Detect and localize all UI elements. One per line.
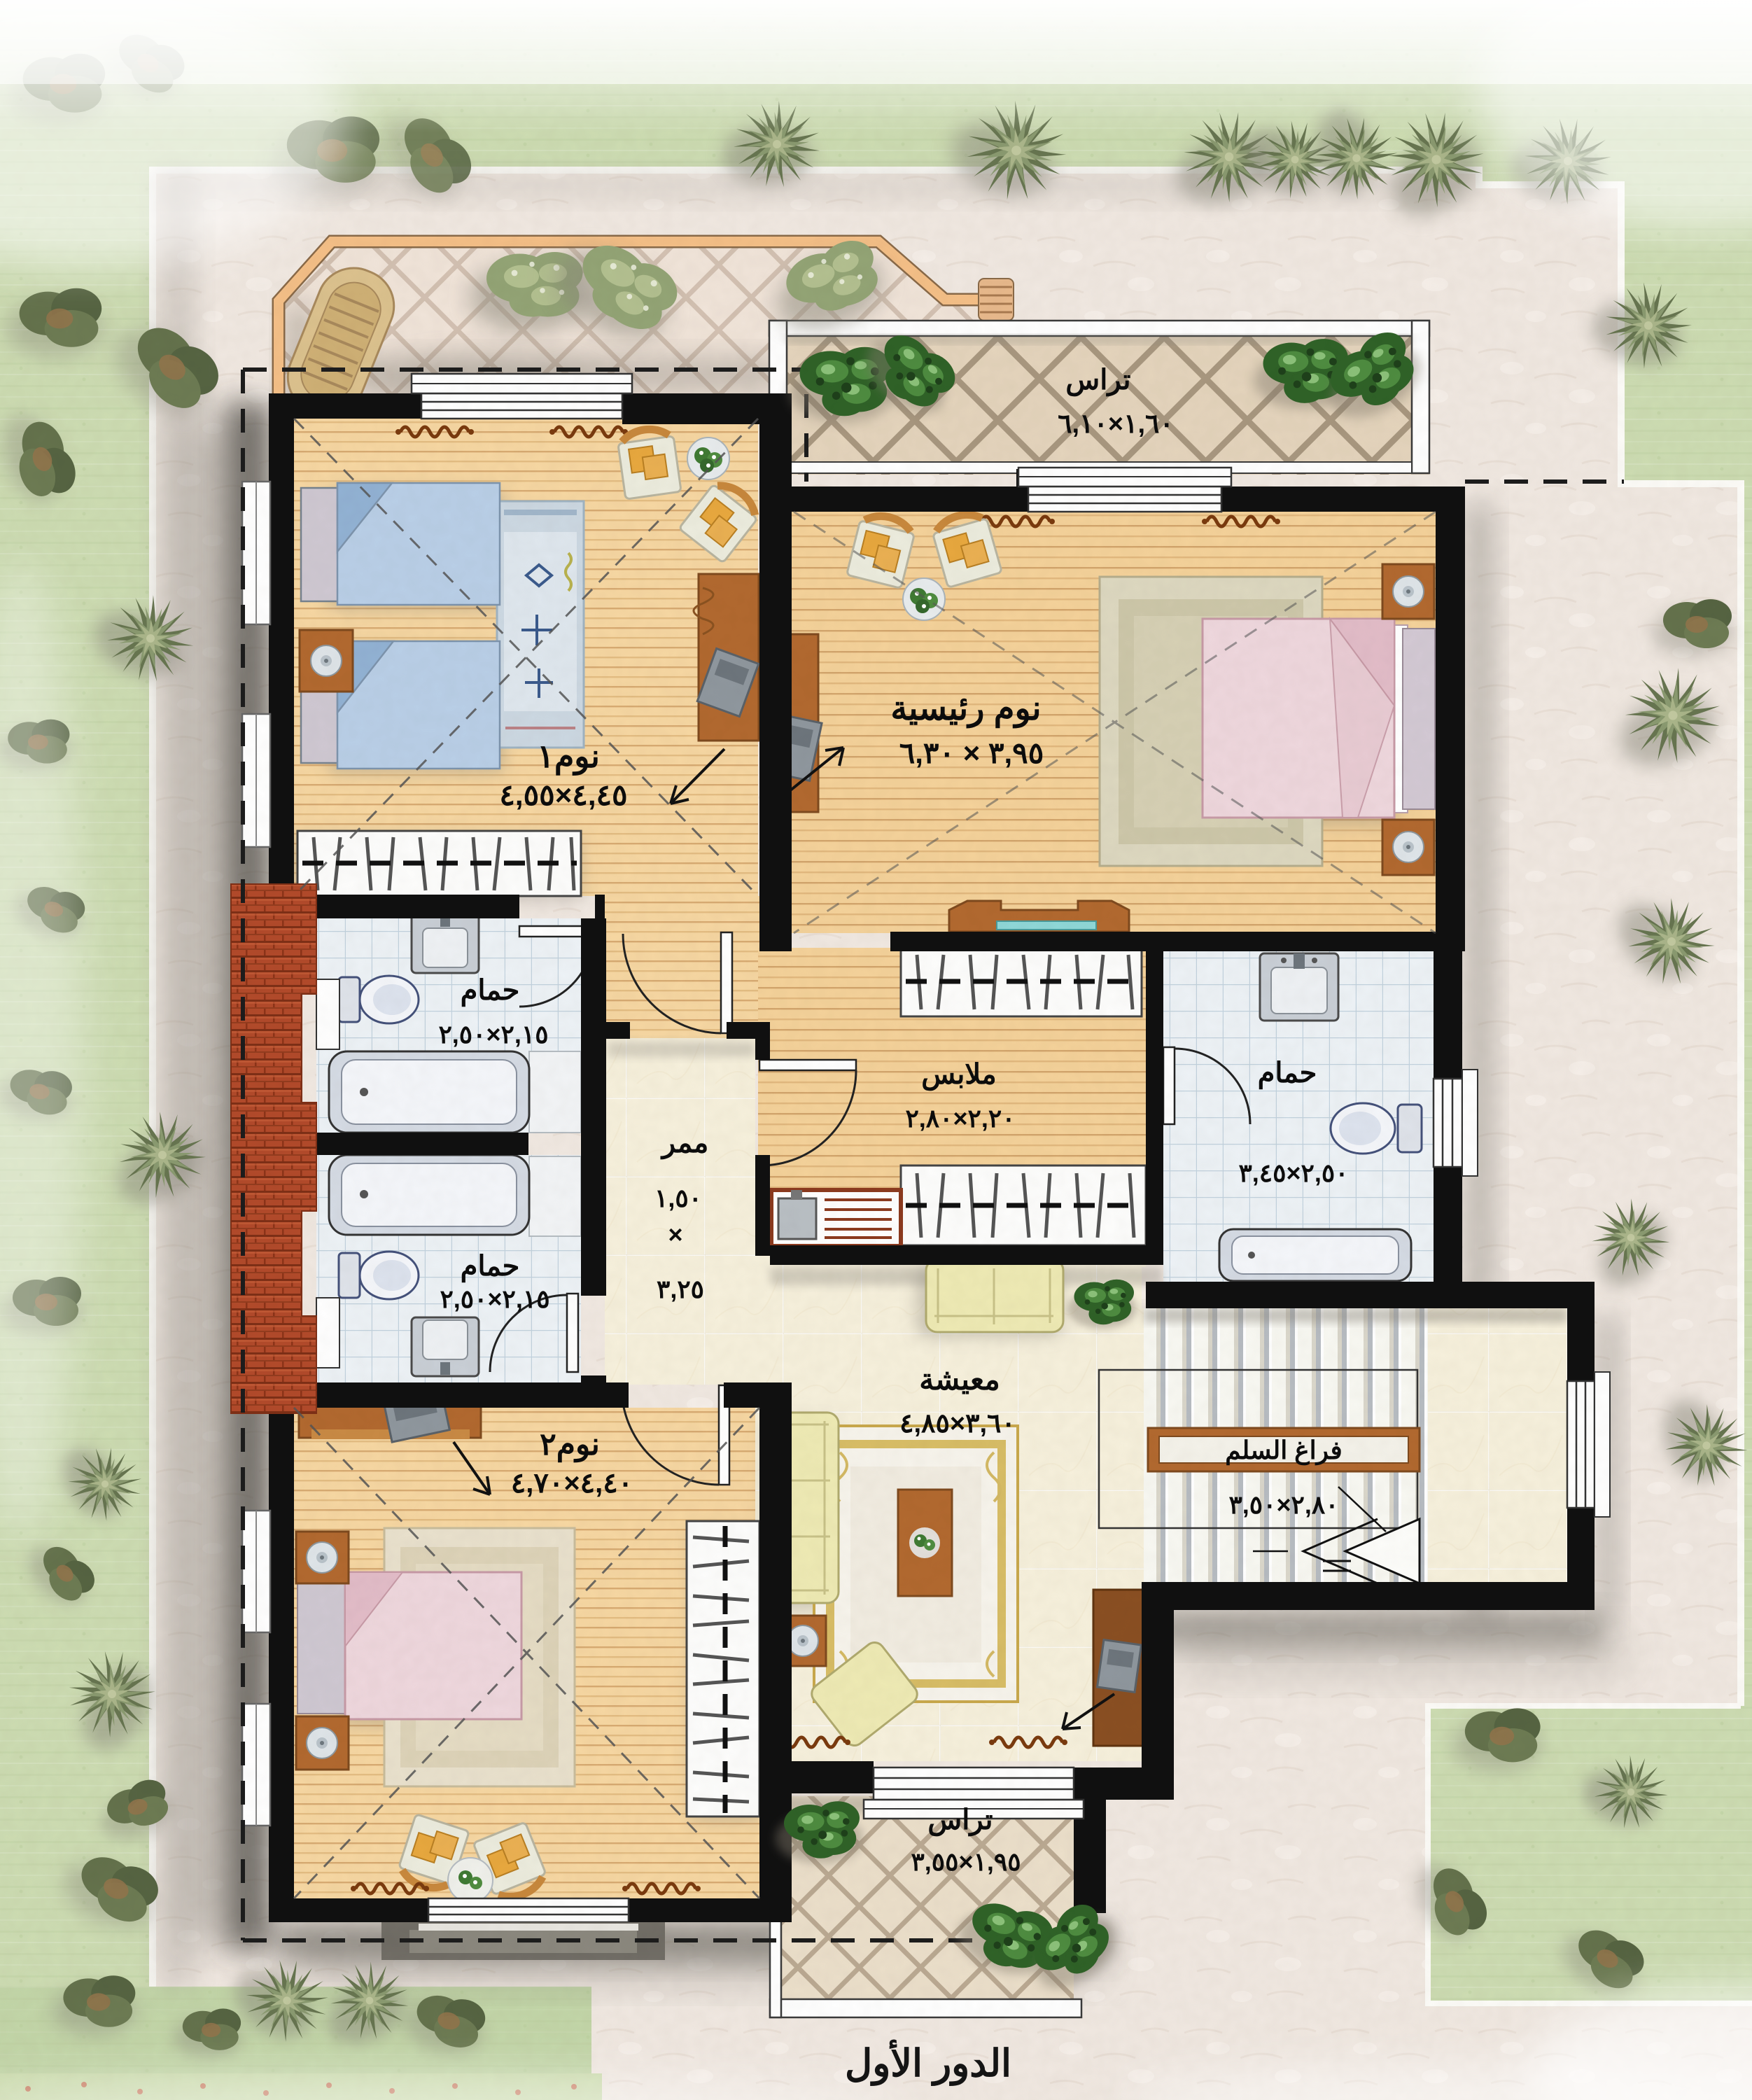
svg-text:الدور الأول: الدور الأول [845, 2039, 1011, 2087]
